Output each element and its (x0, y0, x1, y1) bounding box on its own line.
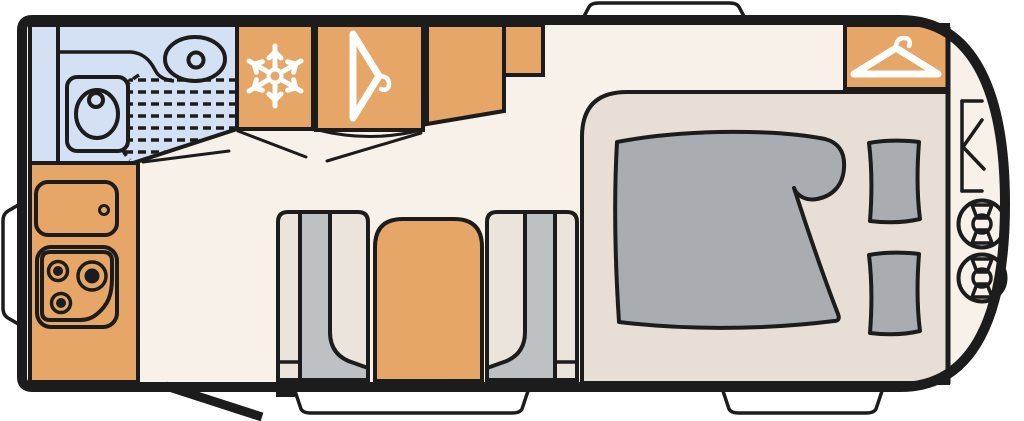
gas-bottle-icon-1 (959, 201, 1006, 248)
overhead-cabinet-2 (504, 25, 543, 75)
kitchen-counter (30, 163, 138, 382)
washbasin-faucet (89, 93, 103, 107)
bed-duvet (615, 132, 844, 328)
pillow-bottom (869, 253, 920, 335)
pillow-top (869, 141, 920, 223)
burner-large-dot (85, 269, 100, 284)
kitchen-unit (30, 163, 138, 382)
dinette-area (278, 212, 577, 381)
toilet-icon (165, 37, 225, 81)
overhead-cabinet-1 (427, 25, 504, 124)
caravan-floorplan (0, 0, 1024, 421)
burner-small-1-dot (53, 266, 63, 276)
mid-wardrobe (316, 25, 423, 130)
floorplan-canvas (0, 0, 1024, 421)
front-wardrobe (845, 25, 948, 89)
burner-small-2-dot (56, 298, 66, 308)
dinette-table (375, 219, 482, 381)
fridge-cabinet (237, 25, 313, 129)
entry-step (276, 384, 295, 397)
